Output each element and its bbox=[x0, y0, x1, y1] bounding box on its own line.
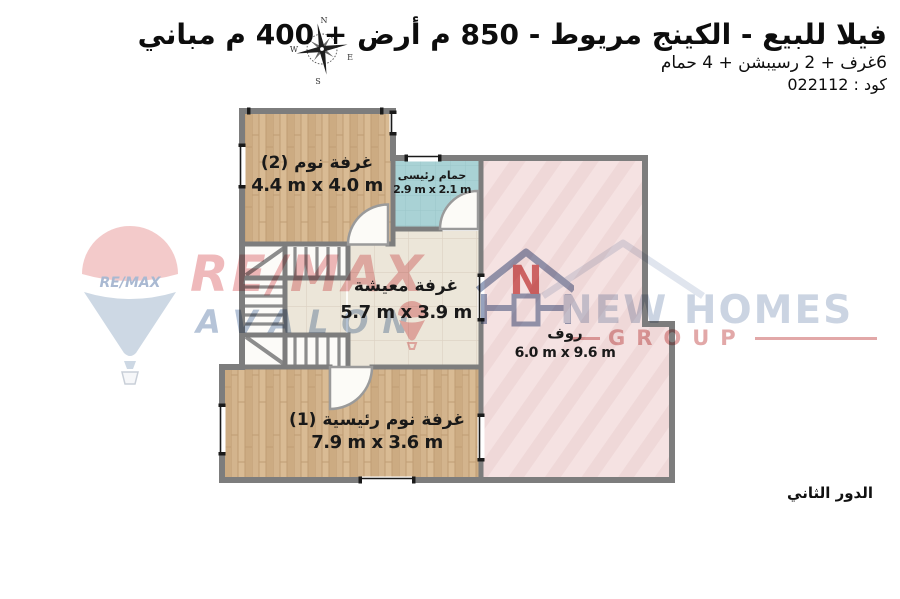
listing-specs: 6غرف + 2 رسيبشن + 4 حمام bbox=[138, 53, 887, 73]
roof-name: روف bbox=[515, 324, 616, 343]
master-bedroom-name: غرفة نوم رئيسية (1) bbox=[289, 410, 465, 431]
bathroom-dims: 2.9 m x 2.1 m bbox=[393, 183, 471, 197]
roof-dims: 6.0 m x 9.6 m bbox=[515, 345, 616, 363]
wall-tick-right bbox=[380, 108, 384, 115]
bedroom-2-dims: 4.4 m x 4.0 m bbox=[251, 175, 382, 198]
roof-label: روف 6.0 m x 9.6 m bbox=[515, 324, 616, 362]
bathroom-label: حمام رئيسى 2.9 m x 2.1 m bbox=[393, 169, 471, 197]
window-bathroom-top bbox=[405, 155, 442, 162]
master-bedroom-label: غرفة نوم رئيسية (1) 7.9 m x 3.6 m bbox=[289, 410, 465, 455]
floor-name-label: الدور الثاني bbox=[787, 484, 873, 502]
living-room-name: غرفة معيشة bbox=[340, 276, 471, 297]
window-master-left bbox=[219, 404, 226, 456]
bedroom-2-name: غرفة نوم (2) bbox=[251, 153, 382, 174]
master-bedroom-dims: 7.9 m x 3.6 m bbox=[289, 432, 465, 455]
window-bedroom2-left bbox=[239, 144, 246, 189]
window-bedroom2-right bbox=[390, 111, 397, 136]
window-master-roof bbox=[478, 414, 485, 462]
wall-tick-left bbox=[247, 108, 251, 115]
living-room-label: غرفة معيشة 5.7 m x 3.9 m bbox=[340, 276, 471, 325]
stair-landing-floor bbox=[287, 280, 346, 333]
bedroom-2-label: غرفة نوم (2) 4.4 m x 4.0 m bbox=[251, 153, 382, 198]
listing-code: كود : 022112 bbox=[138, 75, 887, 94]
living-room-dims: 5.7 m x 3.9 m bbox=[340, 302, 471, 325]
floorplan-page: N S W E RE/MAX RE/MAX AVALON bbox=[0, 0, 900, 599]
header: فيلا للبيع - الكينج مريوط - 850 م أرض + … bbox=[138, 18, 887, 94]
window-living-roof bbox=[478, 274, 485, 322]
window-master-bottom bbox=[359, 477, 416, 484]
bathroom-name: حمام رئيسى bbox=[393, 169, 471, 183]
listing-title: فيلا للبيع - الكينج مريوط - 850 م أرض + … bbox=[138, 18, 887, 52]
